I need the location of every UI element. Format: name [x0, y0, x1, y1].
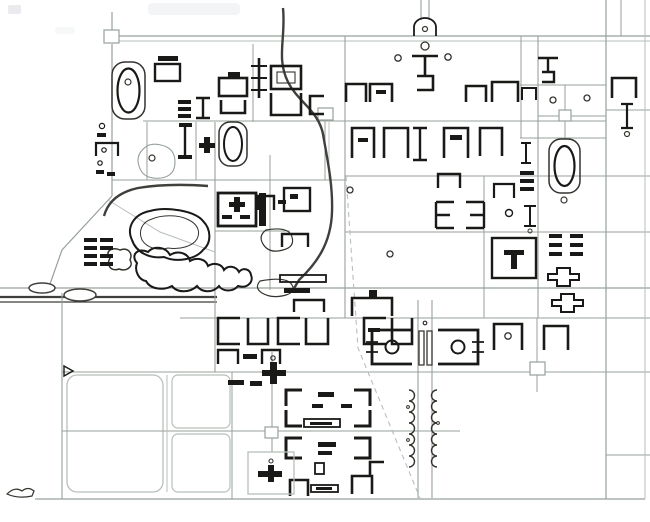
tree-508 [505, 333, 511, 339]
bldg-row2-i [413, 128, 427, 160]
bldg-axis-t [412, 56, 438, 90]
lake-south-shore [134, 248, 251, 292]
glyph-triangle [64, 366, 73, 376]
bldg-e-east1 [436, 202, 454, 228]
bldg-col-bars [520, 171, 534, 191]
tree-i-627 [625, 132, 630, 137]
bldg-bars-trio [178, 100, 191, 118]
bldg-sym-east-circle [452, 341, 465, 354]
bldg-e-east2 [466, 202, 484, 228]
lake-north-inner [140, 216, 198, 249]
lake-north-shore [130, 209, 209, 260]
bldg-court1-tr [354, 390, 370, 406]
bldg-court2-tr [354, 438, 370, 458]
bldg-plus [199, 137, 215, 153]
bldg-court2-sq [315, 463, 324, 474]
bldg-c-494s [494, 324, 522, 350]
bldg-c-492 [492, 82, 518, 102]
bldg-c-466 [466, 86, 486, 102]
bldg-c-494n [494, 184, 514, 198]
campus-plan-canvas [0, 0, 650, 522]
glyph-dots-2 [102, 148, 106, 152]
bldg-courtyard-se-t [504, 250, 524, 269]
glyph-dots-3 [98, 161, 102, 165]
lakeside-arc-road [104, 185, 208, 216]
bldg-court3-l [370, 462, 384, 476]
bldg-court-slab-bar [310, 422, 332, 425]
bldg-sym-east-spine [472, 336, 484, 358]
bldg-dark-u-ring [219, 78, 247, 96]
tree-350 [347, 187, 353, 193]
track-east-oval [555, 146, 575, 186]
tree-398 [395, 55, 401, 61]
bldg-d-u2 [294, 300, 324, 312]
smudge-topleft [8, 5, 21, 14]
bldg-big-u-stub [369, 290, 377, 299]
bldg-i-627 [621, 104, 633, 128]
bldg-c-346 [346, 84, 366, 102]
bldg-c-522 [522, 88, 536, 100]
bldg-d-ring-bar [290, 194, 298, 199]
tree-row-dot-2 [407, 439, 410, 442]
tree-390 [387, 251, 393, 257]
campus-plan-svg [0, 0, 650, 522]
bldg-c-612 [612, 78, 636, 98]
track-east-mark [561, 197, 567, 203]
glyph-dots-1 [99, 123, 104, 128]
pavilion-dot [269, 459, 273, 463]
tree-553 [550, 97, 556, 103]
bldg-row2-c3-bar [450, 135, 462, 140]
bldg-court2-bars [318, 442, 336, 455]
bldg-ring-a [155, 64, 180, 81]
pond-squiggle-sw [7, 489, 34, 498]
node-lens-west2 [64, 289, 96, 301]
bldg-main-hall-bars [222, 215, 250, 219]
bldg-dark-u-cap [228, 72, 240, 77]
bldg-c-544 [544, 326, 568, 350]
bldg-t-538 [538, 58, 558, 82]
block-sw-b-upper [172, 375, 230, 428]
bldg-sym-east [438, 330, 478, 364]
bldg-row348-c1 [218, 350, 238, 364]
block-sw-a [67, 375, 163, 492]
bldg-row2-c3 [444, 128, 468, 158]
bldg-d-u [282, 234, 308, 247]
powerline-diagonal [346, 176, 420, 498]
bldg-row348-bar [243, 354, 257, 359]
node-lens-west1 [29, 283, 55, 293]
bldg-slab-288 [284, 288, 310, 293]
stadium-track-nw-mark [125, 79, 131, 85]
smudge-topcenter [148, 3, 240, 15]
bldg-bar-a [158, 56, 178, 61]
tree-axis-top [421, 42, 429, 50]
bldg-bars-380 [228, 380, 262, 386]
bldg-court3-c2 [352, 476, 372, 494]
smudge-small [55, 27, 75, 34]
north-gate-dot [423, 27, 428, 32]
bldg-row2-c1 [352, 128, 374, 158]
tree-cluster-1 [261, 229, 293, 251]
park-path [108, 200, 215, 252]
garden-mound [138, 144, 175, 178]
node-northeast [559, 110, 571, 121]
bldg-court1-bars [312, 392, 352, 408]
bldg-dash-grid [549, 234, 583, 256]
stadium-track-nw-oval [118, 69, 140, 113]
bldg-zigzag-2 [552, 294, 583, 312]
bldg-bar-278 [278, 200, 286, 204]
node-topleft [104, 30, 119, 43]
tree-row-dot-1 [407, 406, 410, 409]
bldg-main-hall-plus [229, 197, 245, 212]
pavilion [258, 465, 282, 482]
node-southeast [530, 362, 545, 375]
tree-509 [506, 210, 513, 217]
bldg-sym-west-spine [366, 336, 378, 358]
bldg-c-370-bar [376, 90, 386, 94]
tree-448 [445, 54, 451, 60]
bldg-row2-c1-bar [358, 138, 368, 142]
bldg-h-shape [196, 98, 210, 118]
bldg-dark-u-lower [221, 100, 245, 113]
bldg-mid-c4 [306, 318, 328, 344]
bldg-i-530 [524, 206, 536, 226]
mall-colonnade [419, 331, 432, 365]
tree-row-west-of-mall [409, 390, 415, 467]
bldg-zigzag-1 [548, 268, 579, 286]
block-sw-b-lower [172, 434, 230, 492]
bldg-main-hall-wing [259, 193, 266, 226]
bldg-mid-c1 [218, 318, 240, 344]
bldg-mid-c3 [278, 318, 300, 344]
bldg-mid-c2 [248, 318, 268, 344]
track-center-oval [224, 127, 242, 161]
bldg-big-u [352, 298, 392, 316]
bldg-court3-slab-bar [316, 487, 332, 490]
bldg-court1-bl [286, 410, 302, 426]
bldg-d-ring [284, 188, 310, 211]
bldg-row2-c2 [384, 128, 408, 158]
node-axis-south [265, 427, 278, 438]
pond-west [108, 249, 131, 270]
tree-587 [584, 95, 590, 101]
bldg-court1-tl [286, 390, 302, 406]
bldg-row2-c4 [480, 128, 502, 156]
tree-row-dot-3 [437, 422, 440, 425]
garden-mound-tree [149, 155, 155, 161]
bldg-ornate-axis [262, 362, 286, 384]
bldg-col-i [521, 143, 531, 163]
mall-colonnade-dot [423, 321, 427, 325]
bldg-bracket-west [96, 143, 118, 156]
bldg-court1-br [354, 410, 370, 426]
